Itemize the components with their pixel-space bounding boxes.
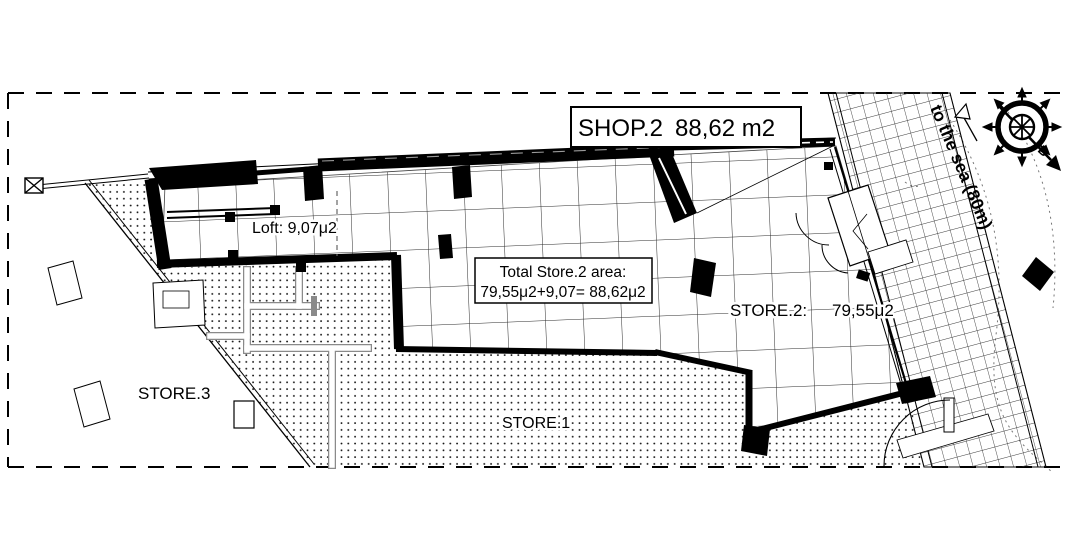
door-leaf [944, 398, 954, 432]
wall-segment [396, 349, 657, 353]
store2-label: STORE.2: [730, 301, 807, 320]
store1-label: STORE.1 [502, 415, 570, 432]
column-stub [452, 165, 472, 199]
loft-label: Loft: 9,07μ2 [252, 220, 337, 237]
total-area-line2: 79,55μ2+9,07= 88,62μ2 [480, 284, 645, 301]
partition-end-block [225, 212, 235, 222]
store3-column [234, 401, 254, 428]
title-shop-name: SHOP.2 [578, 115, 663, 142]
wall-stub [296, 263, 306, 272]
wall-stub [438, 234, 453, 259]
wall-segment [396, 255, 399, 349]
corner-block [741, 425, 770, 456]
total-area-box: Total Store.2 area: 79,55μ2+9,07= 88,62μ… [475, 258, 652, 303]
floor-plan-canvas: to the sea (80m) B SHOP.2 88,62 m2 [0, 0, 1065, 543]
total-area-line1: Total Store.2 area: [500, 264, 627, 281]
corner-column-x-marker [25, 178, 43, 193]
wall-stub [228, 250, 238, 259]
store2-area: 79,55μ2 [832, 301, 894, 320]
store3-label: STORE.3 [138, 384, 210, 403]
hinge-mark [824, 162, 833, 170]
title-shop-area: 88,62 m2 [675, 115, 775, 142]
title-box: SHOP.2 88,62 m2 [571, 107, 801, 147]
compass-hub-center [1020, 125, 1024, 129]
column-stub [303, 165, 324, 201]
store3-fixture [153, 280, 205, 328]
